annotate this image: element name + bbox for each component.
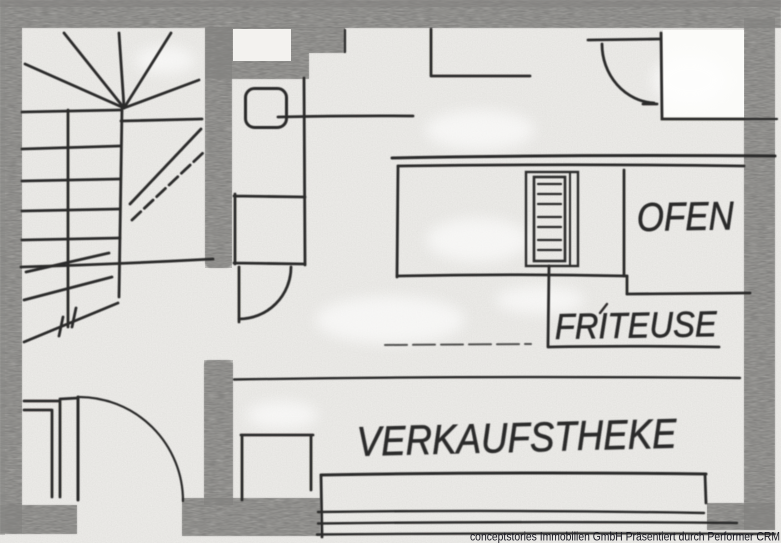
svg-text:OFEN: OFEN — [636, 194, 734, 240]
svg-text:VERKAUFSTHEKE: VERKAUFSTHEKE — [356, 410, 678, 465]
svg-text:FRITEUSE: FRITEUSE — [554, 303, 718, 347]
svg-text:conceptstories Immobilien GmbH: conceptstories Immobilien GmbH Präsentie… — [470, 532, 780, 543]
